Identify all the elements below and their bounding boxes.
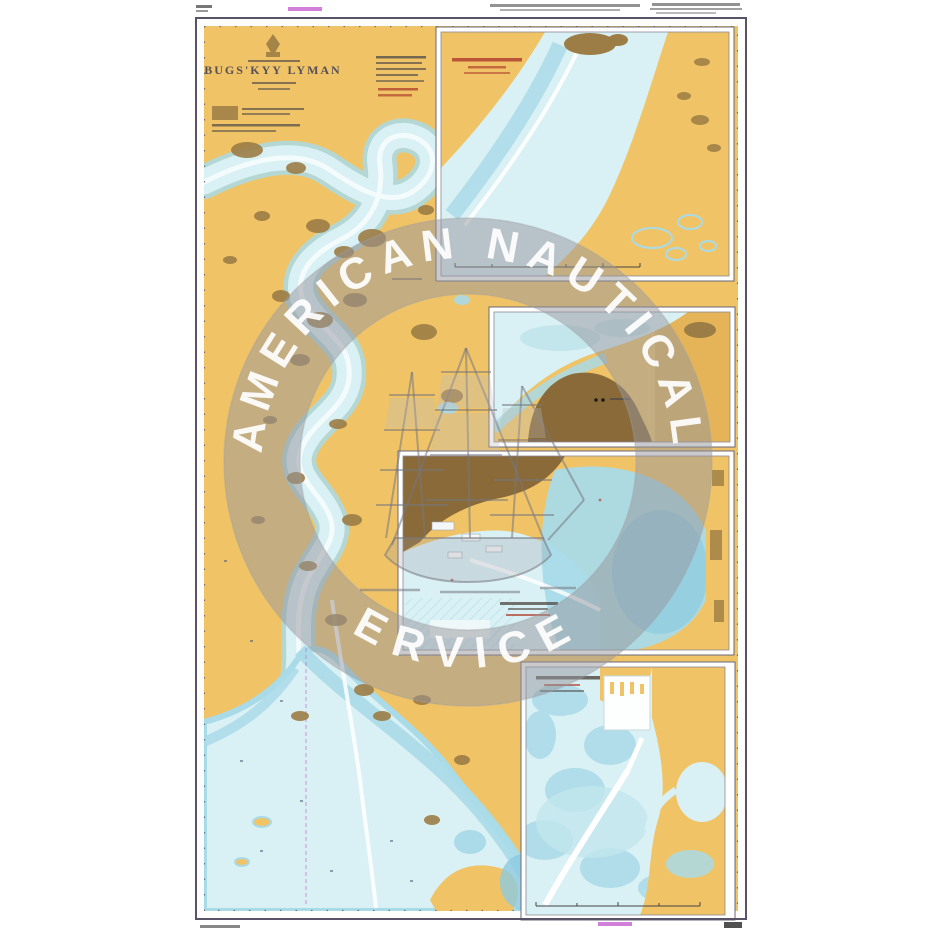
inset-bottom-right: [517, 662, 735, 920]
chart-number: [724, 922, 742, 928]
chart-canvas: AMERICAN NAUTICAL SERVICES: [0, 0, 940, 940]
scanned-nautical-chart: AMERICAN NAUTICAL SERVICES BUGS'KYY LYMA…: [0, 0, 940, 940]
